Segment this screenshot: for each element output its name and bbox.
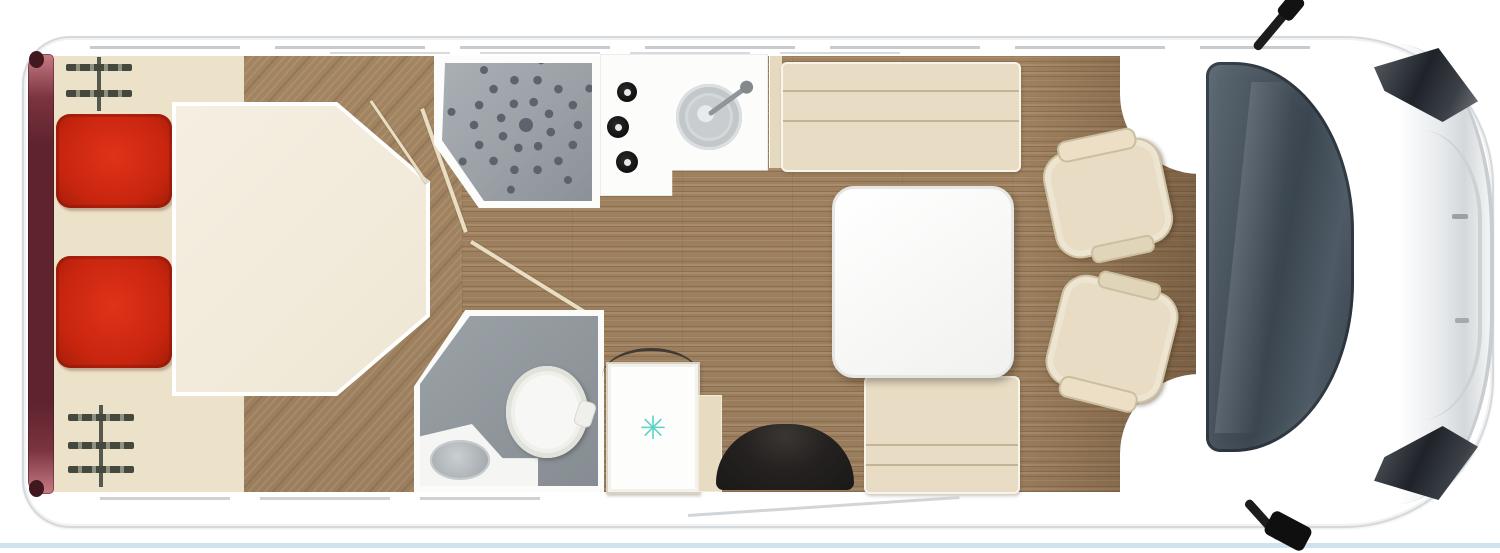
ladder-rung — [68, 466, 134, 473]
hob-burner — [616, 151, 638, 173]
bathroom-sink — [430, 440, 490, 480]
window-line — [330, 52, 930, 54]
hob-burner — [607, 116, 629, 138]
dinette-table — [832, 186, 1014, 378]
bench-seam — [866, 464, 1018, 466]
image-bottom-edge — [0, 543, 1500, 548]
bench-seam — [783, 120, 1019, 122]
grille-vent — [1452, 214, 1468, 219]
dinette-bench-top — [781, 62, 1021, 172]
ladder-icon — [66, 62, 132, 106]
floorplan-canvas: ✳ — [0, 0, 1500, 548]
bench-seam — [783, 90, 1019, 92]
ladder-rung — [68, 414, 134, 421]
ladder-rung — [68, 442, 134, 449]
toilet — [506, 366, 588, 458]
grille-vent — [1455, 318, 1469, 323]
bed-pillow — [56, 256, 172, 368]
ladder-rung — [66, 90, 132, 97]
bench-seam — [866, 444, 1018, 446]
hob-burner — [617, 82, 637, 102]
dinette-bench-bottom — [864, 376, 1020, 494]
fridge: ✳ — [606, 362, 700, 494]
snowflake-icon: ✳ — [640, 412, 667, 444]
window-line — [90, 46, 1310, 49]
rear-bumper-band — [28, 54, 54, 494]
window-line — [100, 497, 540, 500]
ladder-rung — [66, 64, 132, 71]
front-grille-trim — [1420, 130, 1482, 420]
bed-pillow — [56, 114, 172, 208]
ladder-icon — [68, 410, 134, 482]
